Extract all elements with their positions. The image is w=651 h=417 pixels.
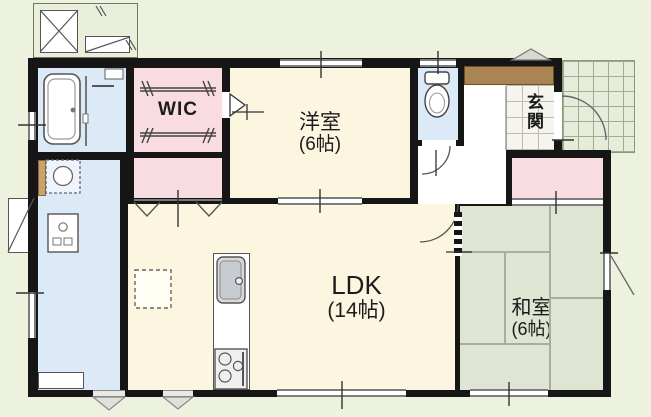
kitchen-counter — [213, 253, 250, 390]
ldk-size: (14帖) — [327, 299, 385, 323]
back-door-threshold-icon — [93, 397, 125, 410]
front-door-gap — [554, 92, 562, 140]
room-hall-closet — [134, 158, 222, 198]
entrance-label: 玄関 — [521, 93, 546, 131]
kitchen-door-threshold-icon — [163, 397, 193, 409]
western-room-label: 洋室 — [299, 111, 341, 134]
hallway-lower — [418, 146, 506, 204]
kitchen-service-door — [163, 390, 193, 397]
toilet-door-gap — [422, 140, 456, 146]
window-bathroom-left — [28, 112, 36, 140]
room-oshiire-closet — [512, 158, 603, 200]
ldk-label: LDK — [331, 271, 382, 300]
window-ldk-bottom — [277, 389, 406, 397]
window-japanese-right — [603, 253, 611, 290]
room-bathroom — [38, 68, 126, 152]
western-room-size: (6帖) — [299, 134, 341, 156]
wic-label: WIC — [158, 100, 198, 121]
window-washroom-left — [28, 292, 36, 338]
shoe-cabinet — [464, 66, 554, 85]
room-wic: WIC — [134, 68, 222, 152]
room-western: 洋室 (6帖) — [230, 68, 410, 198]
wic-door-gap — [222, 92, 230, 118]
outdoor-equipment-box — [85, 36, 130, 53]
back-door — [93, 390, 125, 397]
room-washroom — [38, 160, 120, 390]
sliding-door-western-ldk — [278, 197, 362, 205]
window-toilet-top — [420, 59, 456, 67]
room-japanese: 和室 (6帖) — [460, 206, 603, 390]
window-western-top — [280, 59, 362, 67]
floor-plan: WIC 洋室 (6帖) 玄関 和室 (6帖) LDK (14帖) — [0, 0, 651, 417]
entrance-porch — [562, 60, 635, 153]
room-toilet — [418, 68, 458, 140]
window-japanese-bottom — [470, 389, 548, 397]
japanese-room-size: (6帖) — [512, 319, 552, 340]
backdoor-step — [38, 372, 84, 389]
washroom-shelf — [38, 160, 46, 196]
japanese-window-swing-icon — [611, 256, 634, 295]
sliding-door-oshiire — [512, 198, 603, 206]
outdoor-storage-box — [40, 10, 78, 53]
room-ldk: LDK (14帖) — [128, 204, 455, 390]
ldk-door-gap — [420, 198, 456, 204]
japanese-room-label: 和室 — [512, 297, 552, 319]
